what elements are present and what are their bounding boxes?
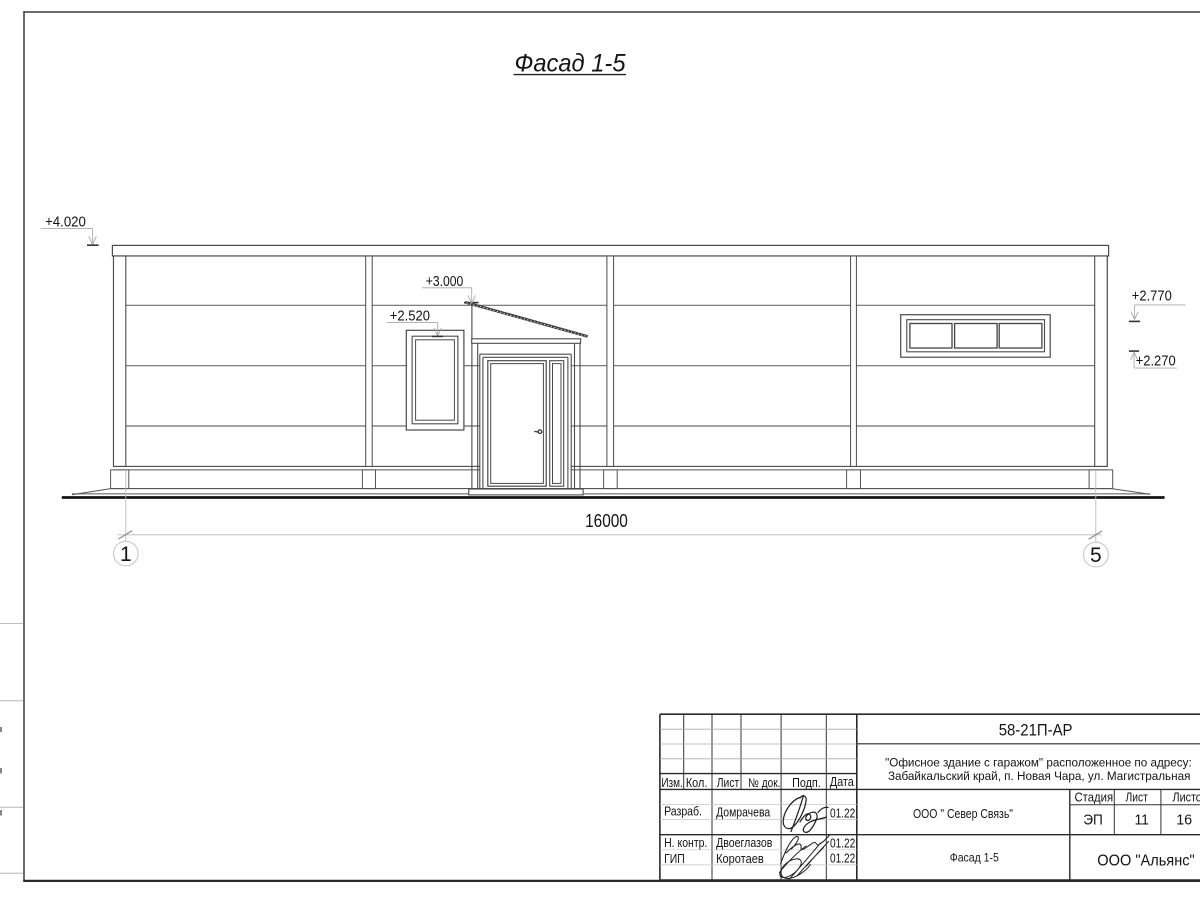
svg-text:01.22: 01.22 (830, 805, 855, 820)
svg-text:Разраб.: Разраб. (664, 803, 702, 818)
svg-text:Подп.: Подп. (792, 776, 821, 790)
svg-text:Стадия: Стадия (1075, 789, 1114, 804)
svg-text:Н. контр.: Н. контр. (664, 835, 707, 850)
svg-text:01.22: 01.22 (830, 851, 855, 866)
svg-text:16000: 16000 (585, 511, 628, 531)
svg-text:01.22: 01.22 (830, 835, 855, 850)
svg-text:ООО "Альянс": ООО "Альянс" (1097, 852, 1194, 869)
svg-text:+2.770: +2.770 (1132, 289, 1172, 305)
svg-text:Изм.: Изм. (661, 776, 683, 790)
svg-text:Кол.: Кол. (686, 776, 708, 790)
svg-text:Забайкальский край, п. Новая Ч: Забайкальский край, п. Новая Чара, ул. М… (888, 769, 1191, 783)
svg-text:Коротаев: Коротаев (716, 851, 764, 866)
svg-text:58-21П-АР: 58-21П-АР (999, 721, 1073, 739)
svg-text:+2.520: +2.520 (390, 308, 430, 324)
svg-text:Лист: Лист (1126, 789, 1148, 804)
svg-text:ГИП: ГИП (664, 851, 685, 866)
svg-text:Лист: Лист (717, 776, 740, 790)
svg-text:Фасад 1-5: Фасад 1-5 (515, 50, 626, 78)
svg-text:Домрачева: Домрачева (716, 804, 771, 819)
svg-text:ЭП: ЭП (1083, 812, 1103, 829)
svg-text:5: 5 (1090, 544, 1102, 567)
svg-text:"Офисное здание с гаражом" рас: "Офисное здание с гаражом" расположенное… (885, 755, 1192, 769)
svg-text:Листов: Листов (1173, 789, 1200, 804)
svg-text:Дата: Дата (830, 775, 854, 789)
svg-text:ООО " Север Связь": ООО " Север Связь" (913, 806, 1013, 821)
svg-text:16: 16 (1176, 812, 1192, 829)
svg-text:1: 1 (120, 543, 132, 566)
svg-text:11: 11 (1134, 812, 1149, 829)
svg-text:Двоеглазов: Двоеглазов (716, 835, 772, 850)
svg-text:№ док.: № док. (748, 776, 780, 790)
svg-text:Фасад 1-5: Фасад 1-5 (950, 850, 999, 864)
svg-text:+2.270: +2.270 (1136, 353, 1176, 369)
